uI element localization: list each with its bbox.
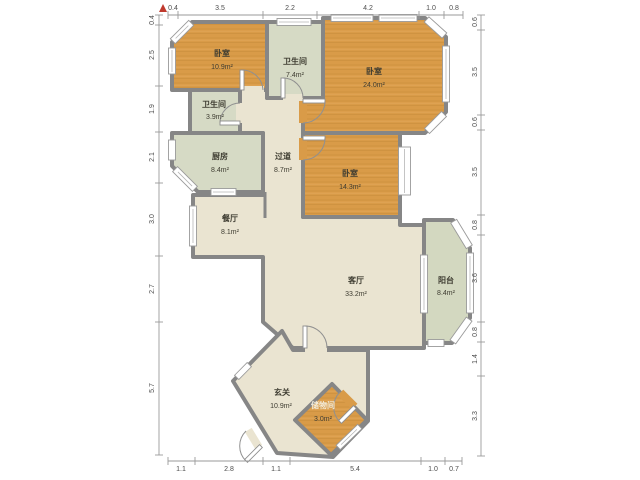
room-label-bath-1: 卫生间 [283, 56, 307, 66]
svg-text:0.4: 0.4 [168, 5, 178, 12]
room-bath-2 [190, 90, 240, 133]
room-area-bath-1: 7.4m² [286, 72, 305, 79]
svg-text:2.7: 2.7 [149, 284, 156, 294]
svg-text:0.4: 0.4 [149, 15, 156, 25]
svg-text:5.7: 5.7 [149, 383, 156, 393]
svg-text:1.0: 1.0 [428, 466, 438, 473]
door-gap-living [305, 344, 327, 353]
room-area-dining: 8.1m² [221, 229, 240, 236]
floor-plan-canvas: 卧室 10.9m² 卫生间 7.4m² 卧室 24.0m² 卫生间 3.9m² … [0, 0, 640, 480]
room-area-hallway: 8.7m² [274, 167, 293, 174]
svg-text:3.6: 3.6 [472, 273, 479, 283]
room-label-bedroom-3: 卧室 [342, 168, 358, 178]
svg-text:3.5: 3.5 [215, 5, 225, 12]
svg-text:3.0: 3.0 [149, 214, 156, 224]
svg-text:3.5: 3.5 [472, 67, 479, 77]
room-area-bedroom-2: 24.0m² [363, 82, 385, 89]
room-label-storage: 储物间 [310, 400, 335, 410]
window-bedroom-3-bay [399, 147, 411, 195]
window-kitchen-left [169, 140, 176, 160]
room-label-kitchen: 厨房 [212, 151, 228, 161]
door-gap-bedroom-3 [299, 138, 307, 160]
floor-plan-svg: 卧室 10.9m² 卫生间 7.4m² 卧室 24.0m² 卫生间 3.9m² … [0, 0, 640, 480]
room-label-dining: 餐厅 [221, 213, 238, 223]
dimension-chain-left: 0.4 2.5 1.9 2.1 3.0 2.7 5.7 [149, 15, 163, 455]
svg-text:0.6: 0.6 [472, 117, 479, 127]
svg-text:3.5: 3.5 [472, 167, 479, 177]
room-label-living: 客厅 [347, 275, 364, 285]
room-area-living: 33.2m² [345, 291, 367, 298]
svg-text:2.1: 2.1 [149, 152, 156, 162]
svg-text:2.5: 2.5 [149, 50, 156, 60]
svg-text:5.4: 5.4 [350, 466, 360, 473]
door-gap-bath-1 [283, 94, 303, 102]
dimension-chain-top: 0.4 3.5 2.2 4.2 1.0 0.8 [168, 5, 463, 19]
window-bedroom-1-left [169, 48, 176, 74]
door-kitchen-slider [211, 189, 236, 196]
svg-text:1.1: 1.1 [271, 466, 281, 473]
window-bath-1-top [277, 19, 311, 26]
room-area-entry: 10.9m² [270, 403, 292, 410]
svg-text:1.9: 1.9 [149, 104, 156, 114]
door-gap-bedroom-1 [242, 86, 264, 94]
svg-text:3.3: 3.3 [472, 411, 479, 421]
svg-text:0.8: 0.8 [472, 220, 479, 230]
svg-text:0.6: 0.6 [472, 17, 479, 27]
dimension-chain-bottom: 1.1 2.8 1.1 5.4 1.0 0.7 [168, 457, 462, 473]
window-dining-left [190, 206, 197, 246]
room-area-bedroom-1: 10.9m² [211, 64, 233, 71]
north-arrow-icon [159, 4, 167, 12]
dimension-chain-right: 0.6 3.5 0.6 3.5 0.8 3.6 0.8 1.4 3.3 [472, 15, 485, 456]
room-area-kitchen: 8.4m² [211, 167, 230, 174]
room-area-bath-2: 3.9m² [206, 114, 225, 121]
svg-text:4.2: 4.2 [363, 5, 373, 12]
door-gap-bath-2 [236, 103, 244, 123]
svg-text:1.4: 1.4 [472, 354, 479, 364]
room-label-bedroom-1: 卧室 [214, 48, 230, 58]
room-area-storage: 3.0m² [314, 416, 333, 423]
room-area-balcony: 8.4m² [437, 290, 456, 297]
svg-text:2.8: 2.8 [224, 466, 234, 473]
svg-text:2.2: 2.2 [285, 5, 295, 12]
svg-text:1.1: 1.1 [176, 466, 186, 473]
svg-text:0.8: 0.8 [449, 5, 459, 12]
svg-text:1.0: 1.0 [426, 5, 436, 12]
room-label-balcony: 阳台 [438, 275, 454, 285]
svg-text:0.8: 0.8 [472, 327, 479, 337]
room-label-hallway: 过道 [275, 151, 291, 161]
room-label-bedroom-2: 卧室 [366, 66, 382, 76]
window-balcony-slider [421, 255, 428, 313]
svg-text:0.7: 0.7 [449, 466, 459, 473]
room-label-bath-2: 卫生间 [202, 99, 226, 109]
room-label-entry: 玄关 [274, 387, 290, 397]
door-gap-bedroom-2 [299, 101, 307, 123]
room-area-bedroom-3: 14.3m² [339, 184, 361, 191]
